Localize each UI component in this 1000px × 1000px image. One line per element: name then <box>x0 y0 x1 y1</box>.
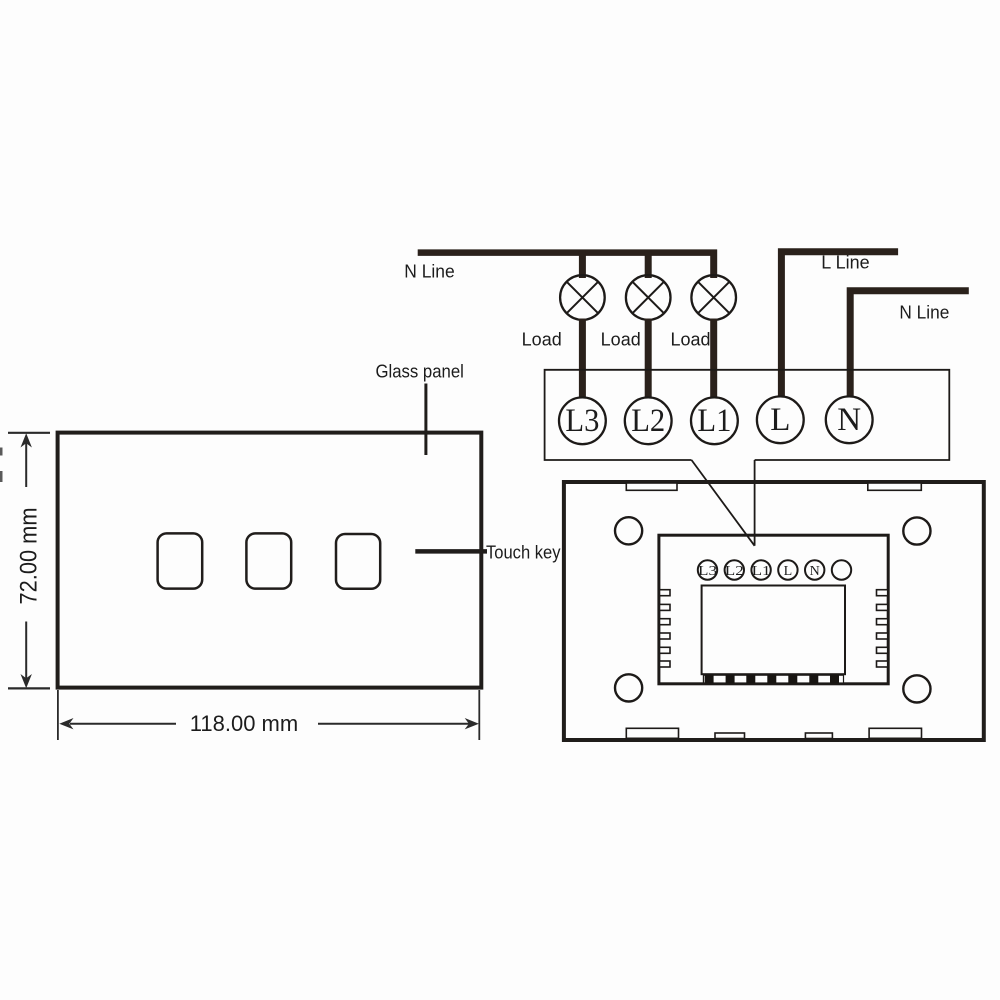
svg-text:N Line: N Line <box>899 303 949 323</box>
svg-text:N: N <box>810 564 820 579</box>
svg-text:L2: L2 <box>725 564 744 579</box>
svg-text:L Line: L Line <box>821 252 869 272</box>
svg-text:L1: L1 <box>697 403 731 439</box>
svg-text:L: L <box>784 564 793 579</box>
svg-text:L2: L2 <box>631 403 665 439</box>
svg-text:L3: L3 <box>698 564 717 579</box>
svg-text:N: N <box>837 402 861 438</box>
svg-text:72.00 mm: 72.00 mm <box>15 508 42 605</box>
svg-text:L3: L3 <box>565 403 599 439</box>
svg-text:L1: L1 <box>752 564 771 579</box>
svg-text:Load: Load <box>522 329 562 349</box>
svg-text:Load: Load <box>670 329 710 349</box>
svg-text:118.00 mm: 118.00 mm <box>190 711 298 736</box>
svg-text:Load: Load <box>601 329 641 349</box>
svg-text:Glass panel: Glass panel <box>376 362 464 382</box>
svg-text:N Line: N Line <box>404 261 454 281</box>
svg-text:Touch key: Touch key <box>486 543 561 563</box>
svg-text:L: L <box>770 402 790 438</box>
